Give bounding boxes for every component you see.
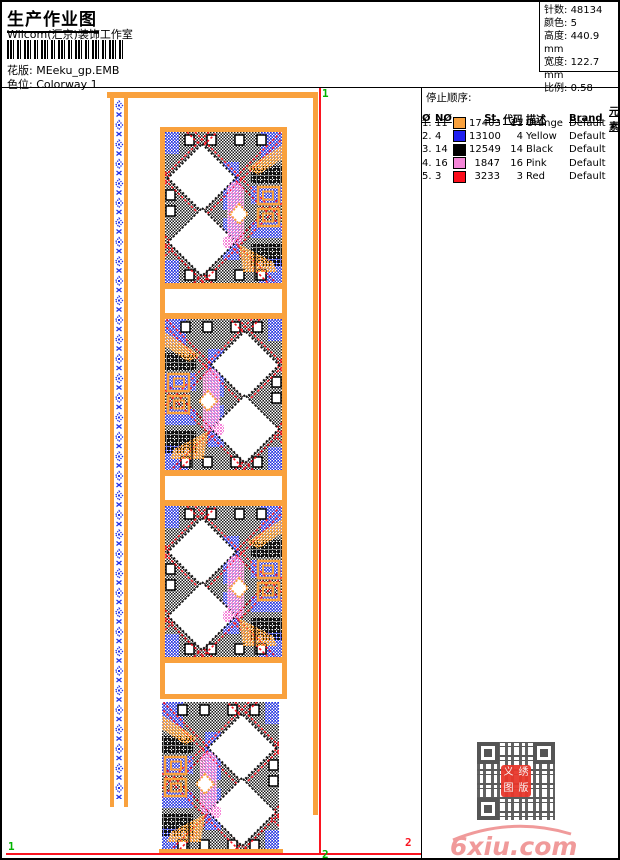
colorway-label: 色位: bbox=[7, 78, 33, 91]
col-element: 元素 bbox=[609, 103, 620, 133]
embroidery-block-3 bbox=[165, 506, 282, 657]
qr-finder-icon bbox=[533, 742, 555, 764]
strip-pattern bbox=[114, 98, 124, 799]
color-swatch bbox=[453, 130, 466, 142]
hoop-mark-1-bottom-left: 1 bbox=[8, 840, 15, 853]
hoop-split-line-vertical bbox=[319, 88, 321, 853]
embroidery-block-2 bbox=[165, 319, 282, 470]
embroidery-block-1 bbox=[165, 132, 282, 283]
watermark-text: 6xiu.com bbox=[450, 832, 577, 860]
table-row: 2.4 131004 YellowDefault bbox=[422, 130, 620, 143]
color-swatch bbox=[453, 144, 466, 156]
qr-code: 义绣 图版 bbox=[474, 739, 558, 823]
qr-finder-icon bbox=[477, 798, 499, 820]
block-separator-bar bbox=[165, 657, 282, 663]
repeat-frame bbox=[160, 127, 287, 699]
hoop-mark-1-top: 1 bbox=[322, 87, 329, 100]
qr-finder-icon bbox=[477, 742, 499, 764]
design-top-border bbox=[107, 92, 318, 98]
production-worksheet-page: 生产作业图 Wilcom(汇京)装饰工作室 花版: MEeku_gp.EMB 色… bbox=[0, 0, 620, 860]
colorway-line: 色位: Colorway 1 bbox=[7, 76, 98, 92]
stop-sequence-table: Ø NØ St. 代码 描述 Brand 元素 1.11 1740311 Ora… bbox=[422, 103, 620, 183]
panel-divider bbox=[421, 87, 422, 859]
table-row: 3.14 1254914 BlackDefault bbox=[422, 143, 620, 156]
design-info-box: 针数: 48134 颜色: 5 高度: 440.9 mm 宽度: 122.7 m… bbox=[539, 2, 620, 72]
stop-sequence-header-row: Ø NØ St. 代码 描述 Brand 元素 bbox=[422, 103, 620, 116]
design-right-border bbox=[313, 92, 318, 815]
colorway-value: Colorway 1 bbox=[36, 78, 97, 91]
width-row: 宽度: 122.7 mm bbox=[544, 56, 620, 82]
red-seal-stamp: 义绣 图版 bbox=[501, 765, 531, 797]
design-barcode bbox=[7, 40, 125, 59]
color-swatch bbox=[453, 157, 466, 169]
color-count-row: 颜色: 5 bbox=[544, 17, 620, 30]
table-row: 5.3 32333 RedDefault bbox=[422, 170, 620, 183]
embroidery-block-4 bbox=[162, 702, 279, 849]
color-swatch bbox=[453, 117, 466, 129]
border-strip-motif bbox=[110, 98, 128, 807]
watermark-logo: 6xiu.com bbox=[447, 824, 577, 860]
hoop-split-line-horizontal bbox=[6, 853, 421, 855]
color-swatch bbox=[453, 171, 466, 183]
height-row: 高度: 440.9 mm bbox=[544, 30, 620, 56]
hoop-mark-2-bottom-right: 2 bbox=[405, 836, 412, 849]
table-row: 4.16 184716 PinkDefault bbox=[422, 157, 620, 170]
header-separator bbox=[2, 87, 620, 88]
stitch-count-row: 针数: 48134 bbox=[544, 4, 620, 17]
hoop-mark-2-bottom-center: 2 bbox=[322, 848, 329, 860]
block-separator-bar bbox=[165, 470, 282, 476]
scale-row: 比例: 0.58 bbox=[544, 82, 620, 95]
block-separator-bar bbox=[165, 283, 282, 289]
